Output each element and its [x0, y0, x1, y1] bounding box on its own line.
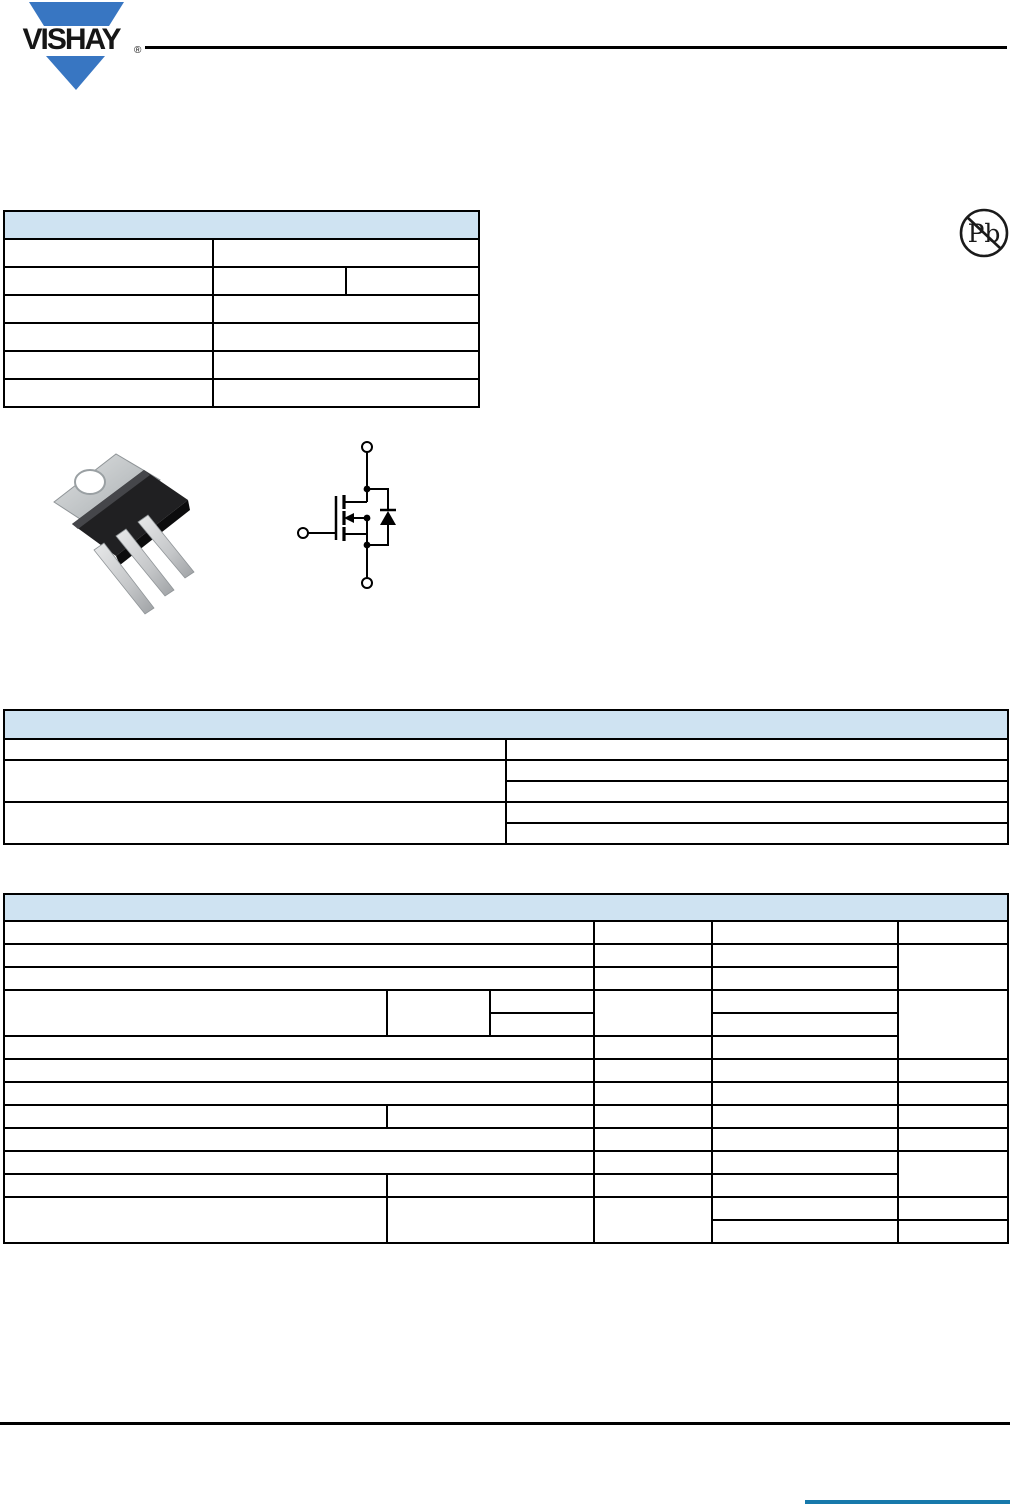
table-row [4, 379, 479, 407]
table-row [4, 1197, 1008, 1220]
table-cell [4, 967, 594, 990]
table-cell [898, 1220, 1008, 1243]
table-cell [506, 802, 1008, 823]
table-cell [594, 1082, 712, 1105]
table-cell [594, 1197, 712, 1243]
table-cell [213, 239, 479, 267]
table-header-row [4, 710, 1008, 739]
table-cell [712, 1013, 898, 1036]
table-row [4, 944, 1008, 967]
mosfet-symbol [288, 430, 408, 600]
table-row [4, 1174, 1008, 1197]
footer-rule [0, 1422, 1010, 1425]
body-diode [380, 511, 396, 525]
table-cell [898, 1059, 1008, 1082]
table-cell [898, 1105, 1008, 1128]
table-cell [898, 1128, 1008, 1151]
header-rule [145, 46, 1007, 49]
table-cell [594, 967, 712, 990]
product-summary-table [3, 210, 480, 408]
table-cell [4, 990, 387, 1036]
table-cell [387, 1105, 594, 1128]
table-cell [594, 1151, 712, 1174]
table-row [4, 921, 1008, 944]
table-cell [712, 1220, 898, 1243]
table-row [4, 351, 479, 379]
datasheet-page: VISHAY ® Pb [0, 0, 1010, 1504]
table-cell [213, 379, 479, 407]
table-cell [594, 1059, 712, 1082]
table-cell [712, 967, 898, 990]
absolute-maximum-ratings-table [3, 893, 1009, 1244]
table-cell [594, 944, 712, 967]
table-cell [712, 1059, 898, 1082]
table-cell [506, 781, 1008, 802]
table-row [4, 967, 1008, 990]
table-header-band [4, 710, 1008, 739]
table-header-band [4, 211, 479, 239]
table-cell [712, 990, 898, 1013]
logo-triangle-bottom [46, 56, 105, 90]
table-row [4, 802, 1008, 823]
table-cell [490, 1013, 594, 1036]
table-cell [712, 1174, 898, 1197]
table-header-row [4, 211, 479, 239]
table-cell [712, 1105, 898, 1128]
table-cell [4, 1105, 387, 1128]
table-row [4, 1105, 1008, 1128]
gate-terminal [298, 528, 308, 538]
table-cell [898, 990, 1008, 1059]
table-cell [213, 267, 346, 295]
table-cell [594, 1105, 712, 1128]
table-row [4, 1036, 1008, 1059]
table-cell [898, 1082, 1008, 1105]
table-cell [4, 323, 213, 351]
table-row [4, 739, 1008, 760]
package-tab-hole [75, 470, 105, 494]
table-row [4, 1059, 1008, 1082]
table-cell [387, 1197, 594, 1243]
table-cell [712, 1036, 898, 1059]
table-cell [4, 1082, 594, 1105]
table-cell [4, 1059, 594, 1082]
table-row [4, 1151, 1008, 1174]
table-header-band [4, 894, 1008, 921]
table-cell [4, 760, 506, 802]
table-cell [346, 267, 479, 295]
table-cell [712, 1197, 898, 1220]
table-cell [594, 1128, 712, 1151]
table-row [4, 323, 479, 351]
table-cell [4, 1128, 594, 1151]
table-cell [4, 379, 213, 407]
table-cell [506, 739, 1008, 760]
table-row [4, 760, 1008, 781]
source-terminal [362, 578, 372, 588]
table-cell [712, 1128, 898, 1151]
registered-mark: ® [134, 45, 142, 56]
table-cell [4, 351, 213, 379]
table-row [4, 239, 479, 267]
table-cell [712, 944, 898, 967]
table-cell [594, 921, 712, 944]
table-cell [387, 990, 490, 1036]
logo-wordmark: VISHAY [23, 23, 122, 56]
table-cell [506, 823, 1008, 844]
drain-terminal [362, 442, 372, 452]
table-row [4, 295, 479, 323]
table-cell [4, 1174, 387, 1197]
table-row [4, 267, 479, 295]
table-cell [387, 1174, 594, 1197]
footer-accent-bar [805, 1500, 1010, 1504]
table-cell [213, 351, 479, 379]
table-cell [4, 739, 506, 760]
table-cell [213, 295, 479, 323]
table-cell [490, 990, 594, 1013]
to220-package-photo [38, 438, 198, 620]
table-cell [712, 1151, 898, 1174]
table-cell [4, 1036, 594, 1059]
table-cell [4, 1197, 387, 1243]
table-cell [594, 1036, 712, 1059]
table-cell [506, 760, 1008, 781]
table-cell [898, 921, 1008, 944]
table-cell [594, 990, 712, 1036]
table-row [4, 990, 1008, 1013]
table-cell [4, 267, 213, 295]
table-cell [4, 944, 594, 967]
table-row [4, 1082, 1008, 1105]
table-cell [4, 1151, 594, 1174]
table-cell [898, 1197, 1008, 1220]
table-cell [898, 944, 1008, 990]
table-cell [4, 295, 213, 323]
pb-free-icon: Pb [958, 207, 1010, 259]
table-cell [4, 239, 213, 267]
table-cell [712, 921, 898, 944]
table-cell [594, 1174, 712, 1197]
table-row [4, 1128, 1008, 1151]
table-cell [712, 1082, 898, 1105]
table-cell [4, 921, 594, 944]
table-header-row [4, 894, 1008, 921]
vishay-logo: VISHAY ® [8, 2, 143, 94]
table-cell [213, 323, 479, 351]
table-cell [4, 802, 506, 844]
ordering-information-table [3, 709, 1009, 845]
table-cell [898, 1151, 1008, 1197]
